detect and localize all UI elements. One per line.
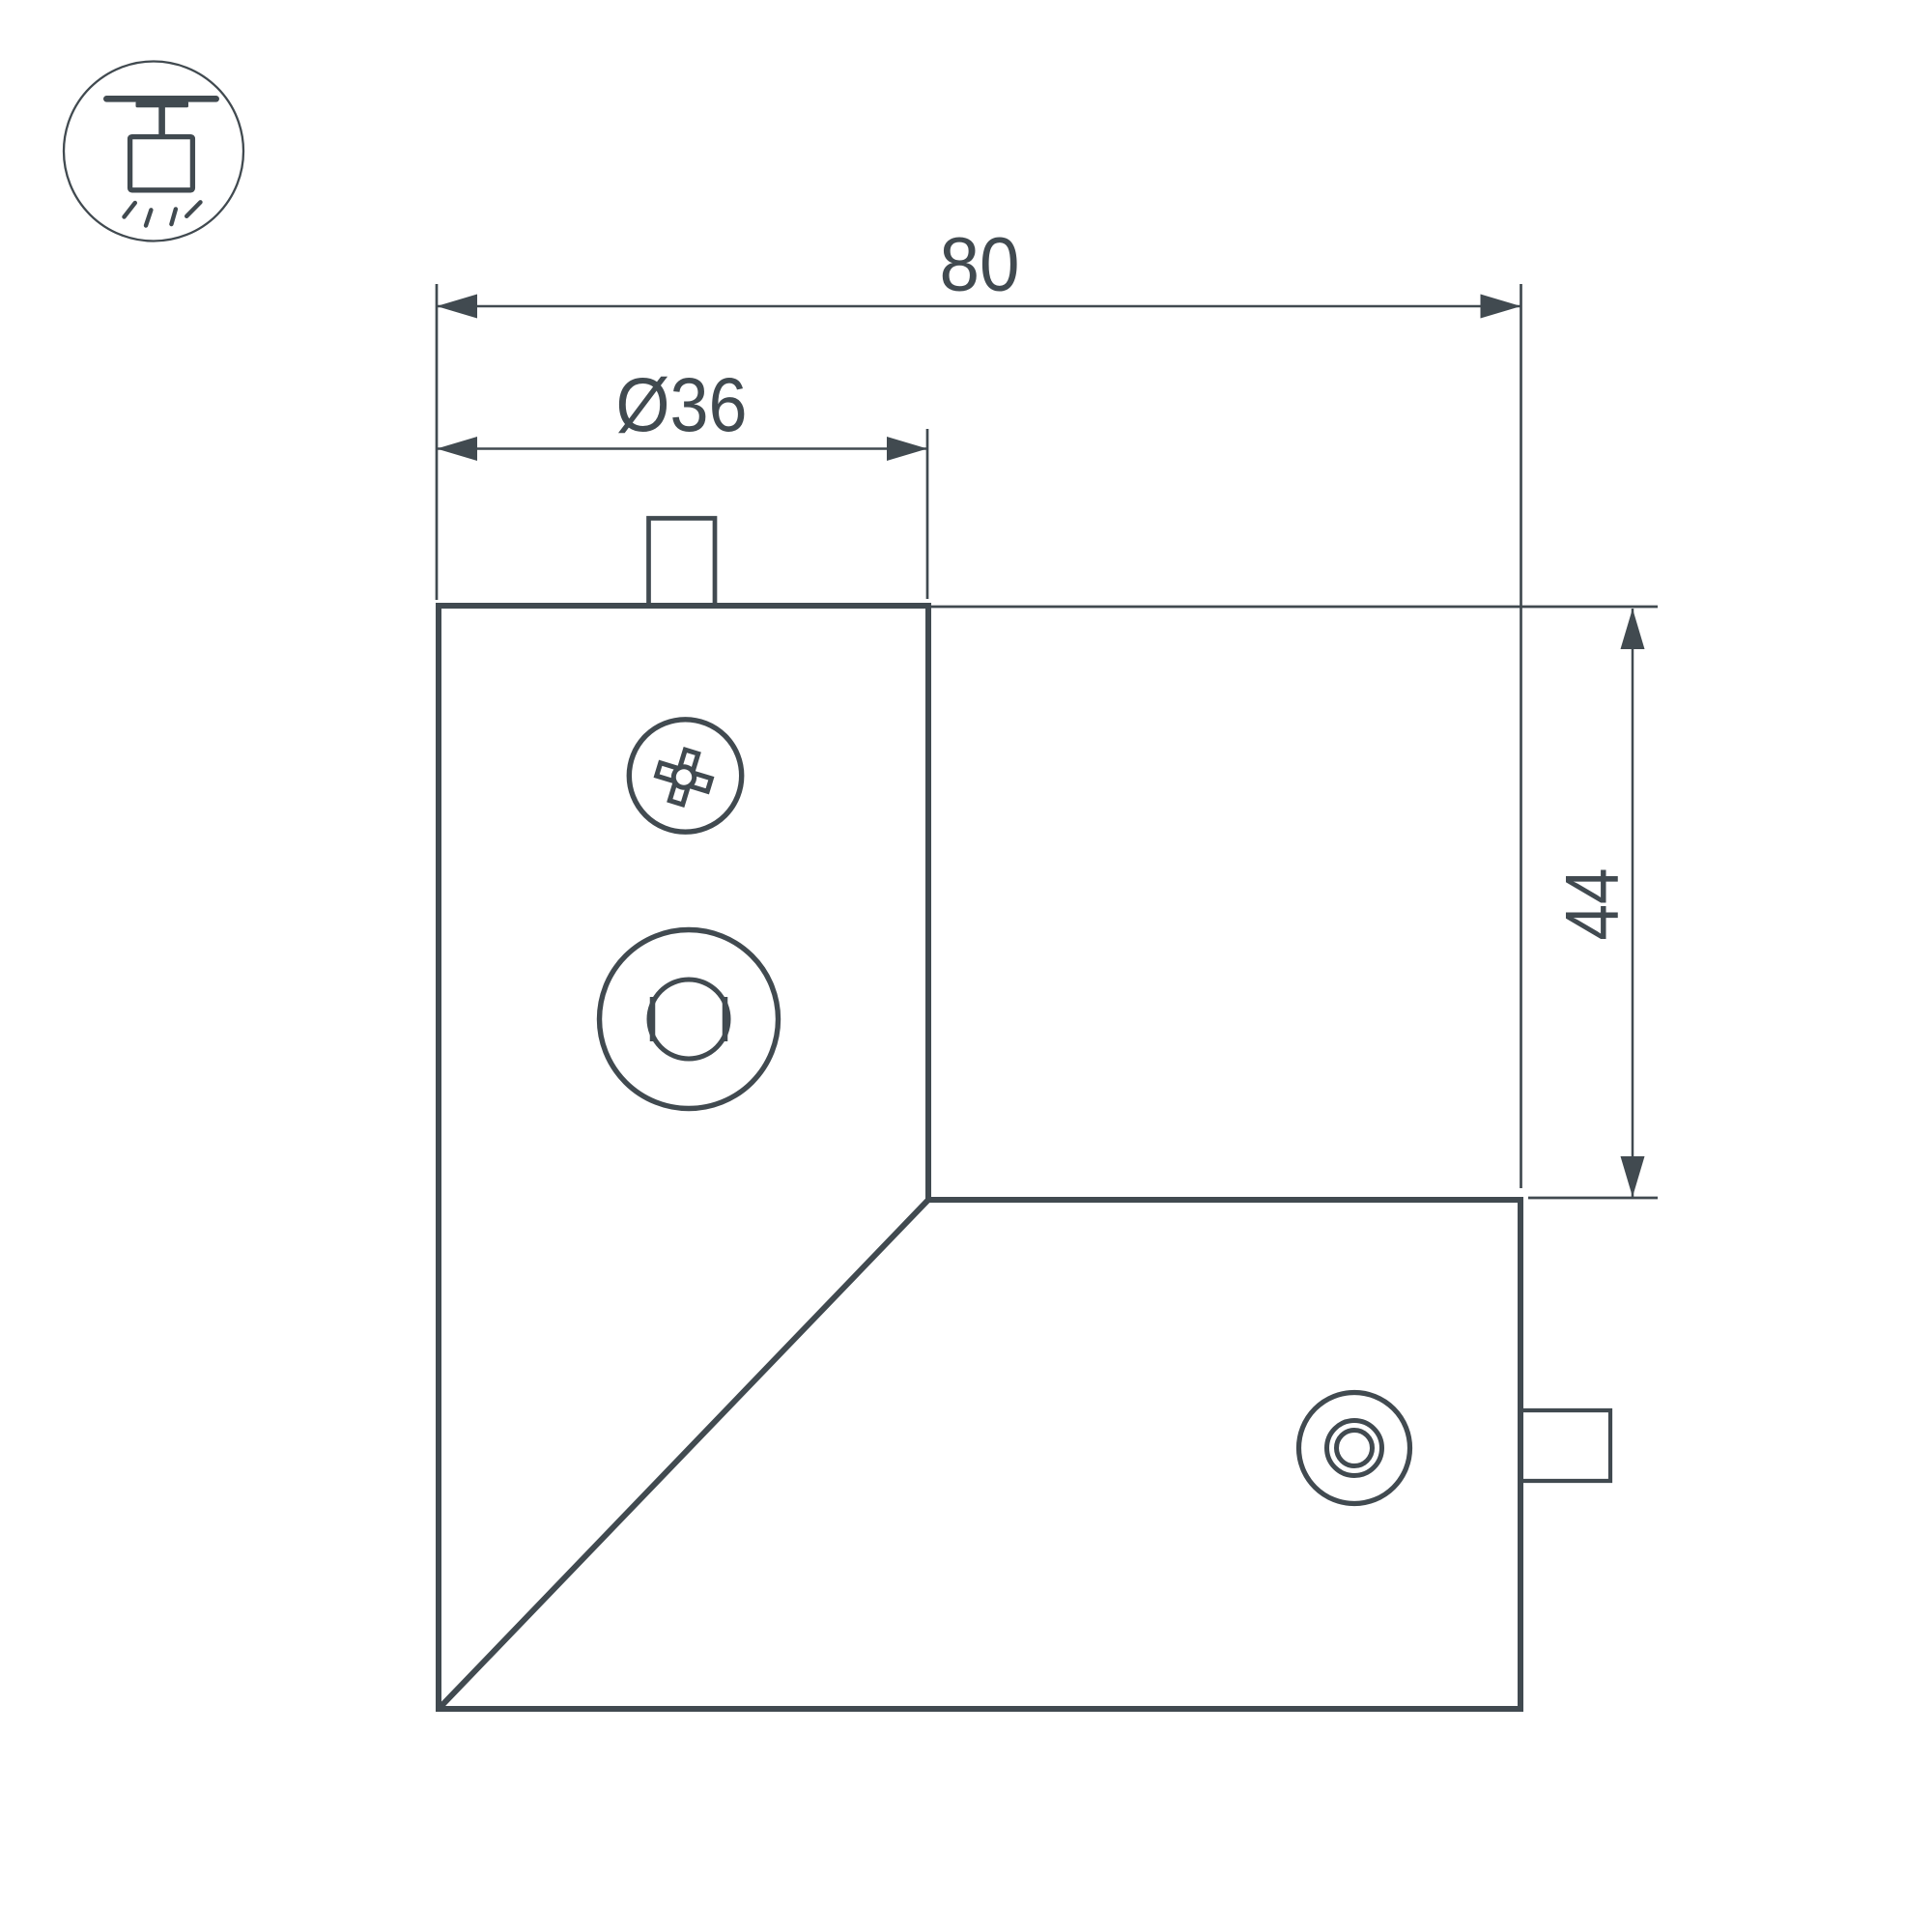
- svg-text:80: 80: [940, 221, 1020, 307]
- svg-text:Ø36: Ø36: [616, 361, 748, 447]
- svg-text:44: 44: [1549, 868, 1634, 941]
